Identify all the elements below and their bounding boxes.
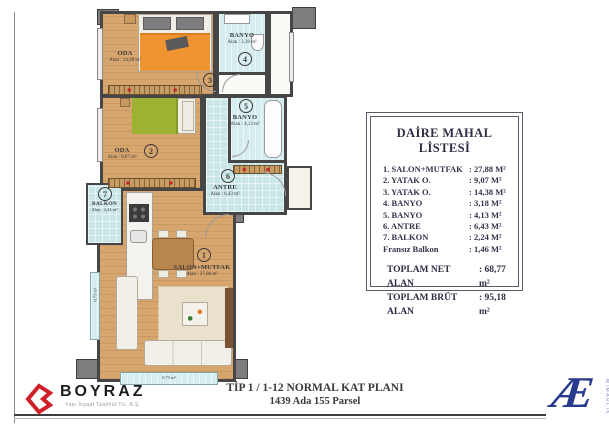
bed-blanket-green [132, 98, 178, 134]
room-label-oda2: ODA Alan : 9,07 m² [104, 147, 140, 161]
sheet-title: TİP 1 / 1-12 NORMAL KAT PLANI [205, 382, 425, 394]
french-balcony-left [90, 272, 100, 340]
room-list-inner-frame: DAİRE MAHAL LİSTESİ 1. SALON+MUTFAK: 27,… [370, 116, 519, 287]
room-name: BANYO [221, 114, 269, 122]
room-area: Alan : 9,07 m² [104, 155, 140, 161]
room-area: Alan : 2,24 m² [88, 207, 121, 212]
room-area: Alan : 27,88 m² [150, 272, 254, 278]
architect-logo-mark: Æ [550, 371, 609, 415]
list-row-name: 1. SALON+MUTFAK [383, 164, 469, 175]
room-number-1: 1 [197, 248, 211, 262]
coffee-table [182, 302, 208, 326]
total-brut-row: TOPLAM BRÜT ALAN: 95,18 m² [371, 291, 518, 319]
room-label-balkon: BALKON Alan : 2,24 m² [88, 201, 121, 213]
room-list-title: DAİRE MAHAL LİSTESİ [375, 126, 514, 156]
room-name: ANTRE [203, 184, 247, 192]
list-row-name: 7. BALKON [383, 232, 469, 243]
room-label-banyo4: BANYO Alan : 3,18 m² [217, 32, 267, 46]
room-label-banyo5: BANYO Alan : 4,13 m² [221, 114, 269, 128]
list-row: 4. BANYO: 3,18 M² [371, 198, 518, 209]
room-name: ODA [102, 50, 148, 58]
room-label-salon: SALON+MUTFAK Alan : 27,88 m² [150, 264, 254, 278]
brand-name: BOYRAZ [60, 383, 146, 401]
room-name: SALON+MUTFAK [150, 264, 254, 272]
list-row: 1. SALON+MUTFAK: 27,88 M² [371, 164, 518, 175]
list-row-name: 4. BANYO [383, 198, 469, 209]
list-row-value: : 6,43 M² [469, 221, 518, 232]
wardrobe-oda2 [108, 178, 196, 188]
list-totals: TOPLAM NET ALAN: 68,77 m² TOPLAM BRÜT AL… [371, 263, 518, 319]
list-row: 5. BANYO: 4,13 M² [371, 210, 518, 221]
footer-divider-line-thin [14, 418, 546, 419]
room-number-6: 6 [221, 169, 235, 183]
room-area: Alan : 4,13 m² [221, 122, 269, 128]
list-row: Fransız Balkon: 1,46 M² [371, 244, 518, 255]
bed-pillow [176, 17, 204, 30]
plan-sheet: ODA Alan : 14,38 m² 3 BANYO Alan : 3,18 … [0, 0, 609, 430]
list-row-value: : 27,88 M² [469, 164, 518, 175]
bed-pillow [182, 101, 194, 131]
list-row: 2. YATAK O.: 9,07 M² [371, 175, 518, 186]
dining-chair [176, 230, 187, 238]
room-list-box: DAİRE MAHAL LİSTESİ 1. SALON+MUTFAK: 27,… [366, 112, 523, 291]
sofa-bottom [144, 340, 232, 366]
room-name: ODA [104, 147, 140, 155]
room-area: Alan : 14,38 m² [102, 58, 148, 64]
total-name: TOPLAM BRÜT ALAN [387, 291, 479, 319]
room-area: Alan : 3,18 m² [217, 40, 267, 46]
architect-logo-subtitle: MİMARLIK [604, 379, 609, 415]
room-number-4: 4 [238, 52, 252, 66]
wall-column-top-right [292, 7, 316, 29]
french-balcony-left-label: 0,73 m² [92, 284, 97, 306]
nightstand [124, 14, 136, 24]
list-row-name: 6. ANTRE [383, 221, 469, 232]
bathtub [264, 100, 282, 158]
boyraz-logo-text: BOYRAZ Yapı İnşaat Taahhüt Tic. A.Ş. [60, 383, 146, 408]
list-row-name: Fransız Balkon [383, 244, 469, 255]
bed-pillow [143, 17, 171, 30]
list-row-name: 5. BANYO [383, 210, 469, 221]
room-number-5: 5 [239, 99, 253, 113]
room-number-7: 7 [98, 187, 112, 201]
boyraz-logo: BOYRAZ Yapı İnşaat Taahhüt Tic. A.Ş. [24, 383, 146, 415]
total-name: TOPLAM NET ALAN [387, 263, 479, 291]
total-value: : 68,77 m² [479, 263, 518, 291]
bathroom-vanity [224, 14, 250, 24]
boyraz-logo-icon [24, 383, 54, 415]
total-net-row: TOPLAM NET ALAN: 68,77 m² [371, 263, 518, 291]
wardrobe-oda3 [108, 85, 202, 95]
total-value: : 95,18 m² [479, 291, 518, 319]
nightstand [120, 98, 130, 107]
list-row-name: 2. YATAK O. [383, 175, 469, 186]
sheet-subtitle: 1439 Ada 155 Parsel [205, 396, 425, 407]
list-row: 3. YATAK O.: 14,38 M² [371, 187, 518, 198]
room-area: Alan : 6,43 m² [203, 192, 247, 198]
list-row-name: 3. YATAK O. [383, 187, 469, 198]
list-row-value: : 14,38 M² [469, 187, 518, 198]
architect-logo: Æ MİMARLIK [552, 371, 606, 419]
sofa-left [116, 276, 138, 350]
list-row-value: : 3,18 M² [469, 198, 518, 209]
sheet-title-block: TİP 1 / 1-12 NORMAL KAT PLANI 1439 Ada 1… [205, 382, 425, 407]
french-balcony-bottom-label: 0,73 m² [120, 375, 218, 380]
room-number-2: 2 [144, 144, 158, 158]
wardrobe-antre [233, 165, 282, 174]
room-number-3: 3 [203, 73, 217, 87]
dining-chair [158, 230, 169, 238]
room-name: BANYO [217, 32, 267, 40]
tv-unit [225, 288, 233, 348]
list-row-value: : 4,13 M² [469, 210, 518, 221]
list-row: 6. ANTRE: 6,43 M² [371, 221, 518, 232]
kitchen-sink [130, 230, 147, 243]
list-row-value: : 9,07 M² [469, 175, 518, 186]
list-row: 7. BALKON: 2,24 M² [371, 232, 518, 243]
cooktop [129, 204, 149, 222]
brand-subtitle: Yapı İnşaat Taahhüt Tic. A.Ş. [60, 402, 146, 408]
window-oda2 [97, 108, 103, 162]
entry-landing [287, 166, 312, 210]
list-row-value: : 1,46 M² [469, 244, 518, 255]
room-label-oda3: ODA Alan : 14,38 m² [102, 50, 148, 64]
list-row-value: : 2,24 M² [469, 232, 518, 243]
window-shaft [289, 32, 294, 82]
room-label-antre: ANTRE Alan : 6,43 m² [203, 184, 247, 198]
left-border-line [14, 12, 15, 423]
